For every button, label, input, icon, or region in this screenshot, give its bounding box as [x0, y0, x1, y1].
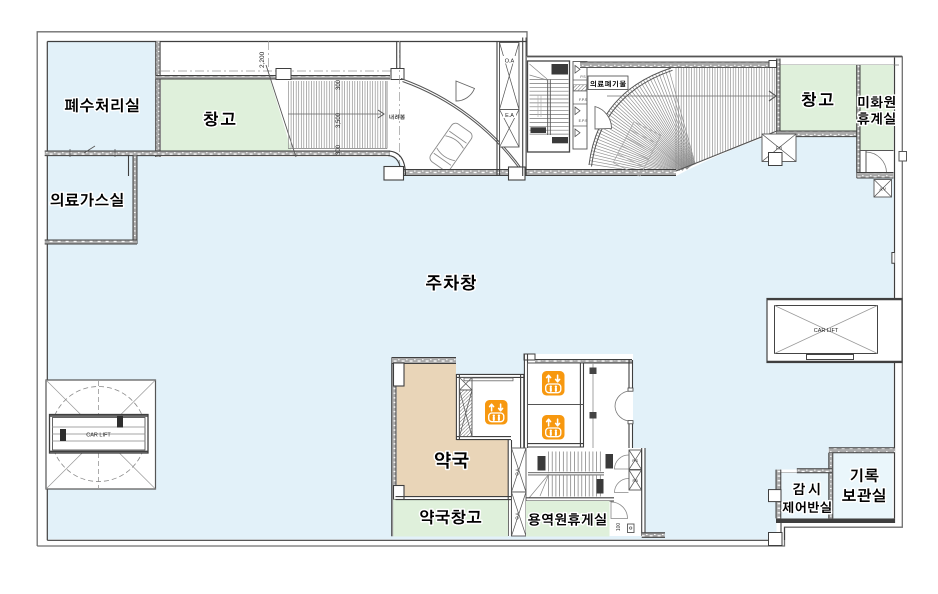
svg-text:CAR LIFT: CAR LIFT: [86, 433, 111, 439]
svg-text:O.A: O.A: [515, 468, 520, 475]
svg-text:F.P.S: F.P.S: [579, 98, 588, 102]
svg-text:CAR LIFT: CAR LIFT: [814, 328, 839, 334]
svg-text:P.S: P.S: [580, 75, 586, 79]
svg-text:2,200: 2,200: [259, 51, 266, 68]
svg-text:P.S: P.S: [632, 459, 638, 463]
svg-text:O.A: O.A: [515, 512, 520, 519]
svg-text:300: 300: [336, 79, 342, 90]
svg-text:F.B: F.B: [632, 479, 638, 483]
svg-text:F.B: F.B: [776, 146, 782, 151]
svg-text:300: 300: [336, 144, 342, 155]
svg-text:A.V: A.V: [879, 187, 886, 192]
svg-text:E.P.S: E.P.S: [579, 119, 588, 123]
svg-text:100: 100: [616, 523, 622, 532]
svg-text:O.A: O.A: [505, 59, 515, 65]
svg-text:E.A: E.A: [505, 113, 514, 119]
svg-text:3,500: 3,500: [336, 112, 342, 128]
